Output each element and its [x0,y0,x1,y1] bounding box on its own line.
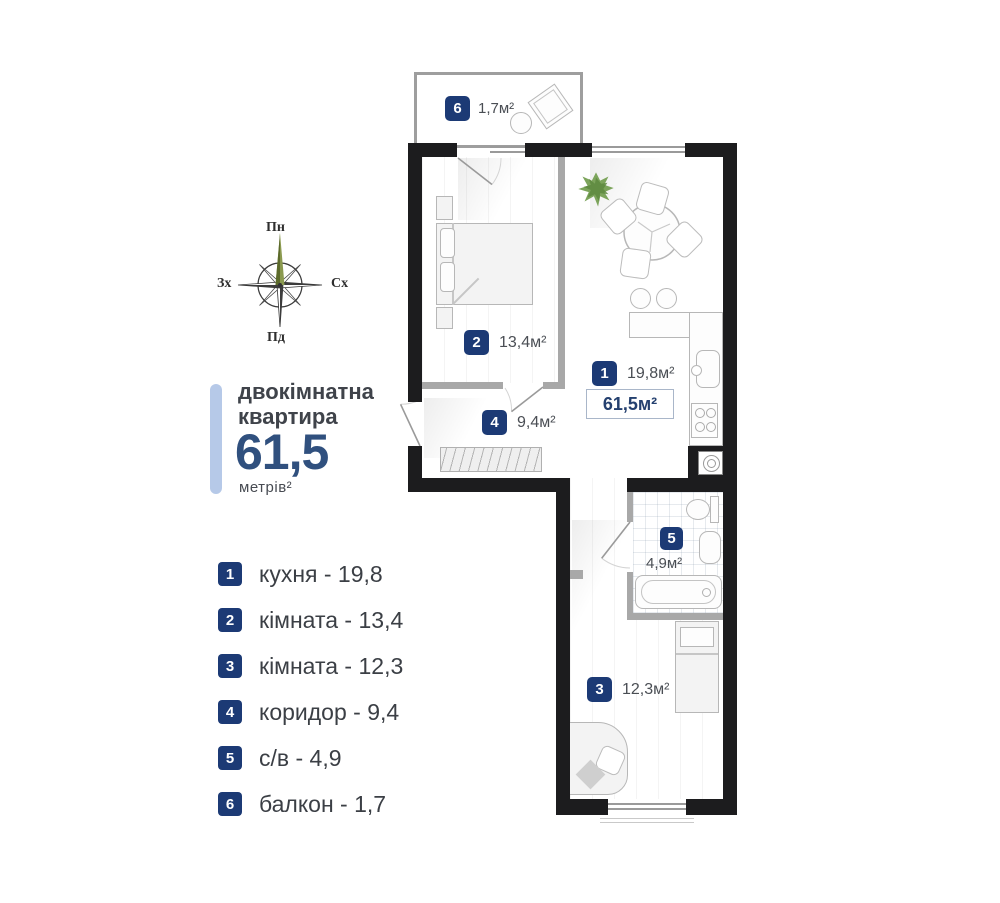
compass-east-label: Сх [331,276,348,292]
washing-machine [698,451,723,475]
room-badge-corridor: 4 [482,410,507,435]
legend-badge-2: 2 [218,608,242,632]
legend-row-room1: 2 кімната - 13,4 [218,597,403,643]
room3-window [608,803,686,805]
floor-plan-page: Пн Сх Пд Зх двокімнатна квартира 61,5 ме… [0,0,1000,903]
legend-label-kitchen: кухня - 19,8 [259,561,383,588]
room-area-corridor: 9,4м² [517,414,556,432]
total-area-unit: метрів² [239,479,292,496]
window-sill [600,818,694,819]
room-badge-bathroom: 5 [660,527,683,550]
legend-badge-1: 1 [218,562,242,586]
legend-label-room1: кімната - 13,4 [259,607,403,634]
wall-segment [686,799,737,815]
legend-label-bathroom: с/в - 4,9 [259,745,342,772]
total-area-box: 61,5м² [586,389,674,419]
apartment-type-line1: двокімнатна [238,379,374,404]
wall-segment [525,143,592,157]
legend-label-corridor: коридор - 9,4 [259,699,399,726]
room-area-kitchen: 19,8м² [627,365,674,383]
legend-row-bathroom: 5 с/в - 4,9 [218,735,403,781]
legend-row-kitchen: 1 кухня - 19,8 [218,551,403,597]
compass-north-label: Пн [266,220,285,236]
compass-south-label: Пд [267,330,285,346]
legend-row-balcony: 6 балкон - 1,7 [218,781,403,827]
wall-segment [556,799,608,815]
room-legend: 1 кухня - 19,8 2 кімната - 13,4 3 кімнат… [218,551,403,827]
room-badge-kitchen: 1 [592,361,617,386]
title-accent-bar [210,384,222,494]
wall-segment [408,143,422,402]
legend-row-corridor: 4 коридор - 9,4 [218,689,403,735]
wall-segment [556,478,570,815]
legend-badge-5: 5 [218,746,242,770]
kitchen-window [592,146,685,148]
wall-segment [408,478,570,492]
compass-west-label: Зх [217,276,231,292]
legend-label-balcony: балкон - 1,7 [259,791,386,818]
room-badge-balcony: 6 [445,96,470,121]
legend-label-room2: кімната - 12,3 [259,653,403,680]
legend-row-room2: 3 кімната - 12,3 [218,643,403,689]
legend-badge-4: 4 [218,700,242,724]
legend-badge-3: 3 [218,654,242,678]
window [490,146,525,148]
compass-rose-icon [225,230,335,340]
room-area-bedroom: 13,4м² [499,334,546,352]
window-sill [600,822,694,823]
room3-window [608,808,686,810]
room-area-bathroom: 4,9м² [646,555,682,572]
room-badge-bedroom: 2 [464,330,489,355]
legend-badge-6: 6 [218,792,242,816]
room-area-room3: 12,3м² [622,681,669,699]
apartment-type-title: двокімнатна квартира [238,379,374,429]
wall-segment [627,478,688,492]
window [490,151,525,153]
room-area-balcony: 1,7м² [478,100,514,117]
door-swings [390,60,750,830]
room-badge-room3: 3 [587,677,612,702]
kitchen-window [592,151,685,153]
total-area-value: 61,5 [235,423,328,481]
